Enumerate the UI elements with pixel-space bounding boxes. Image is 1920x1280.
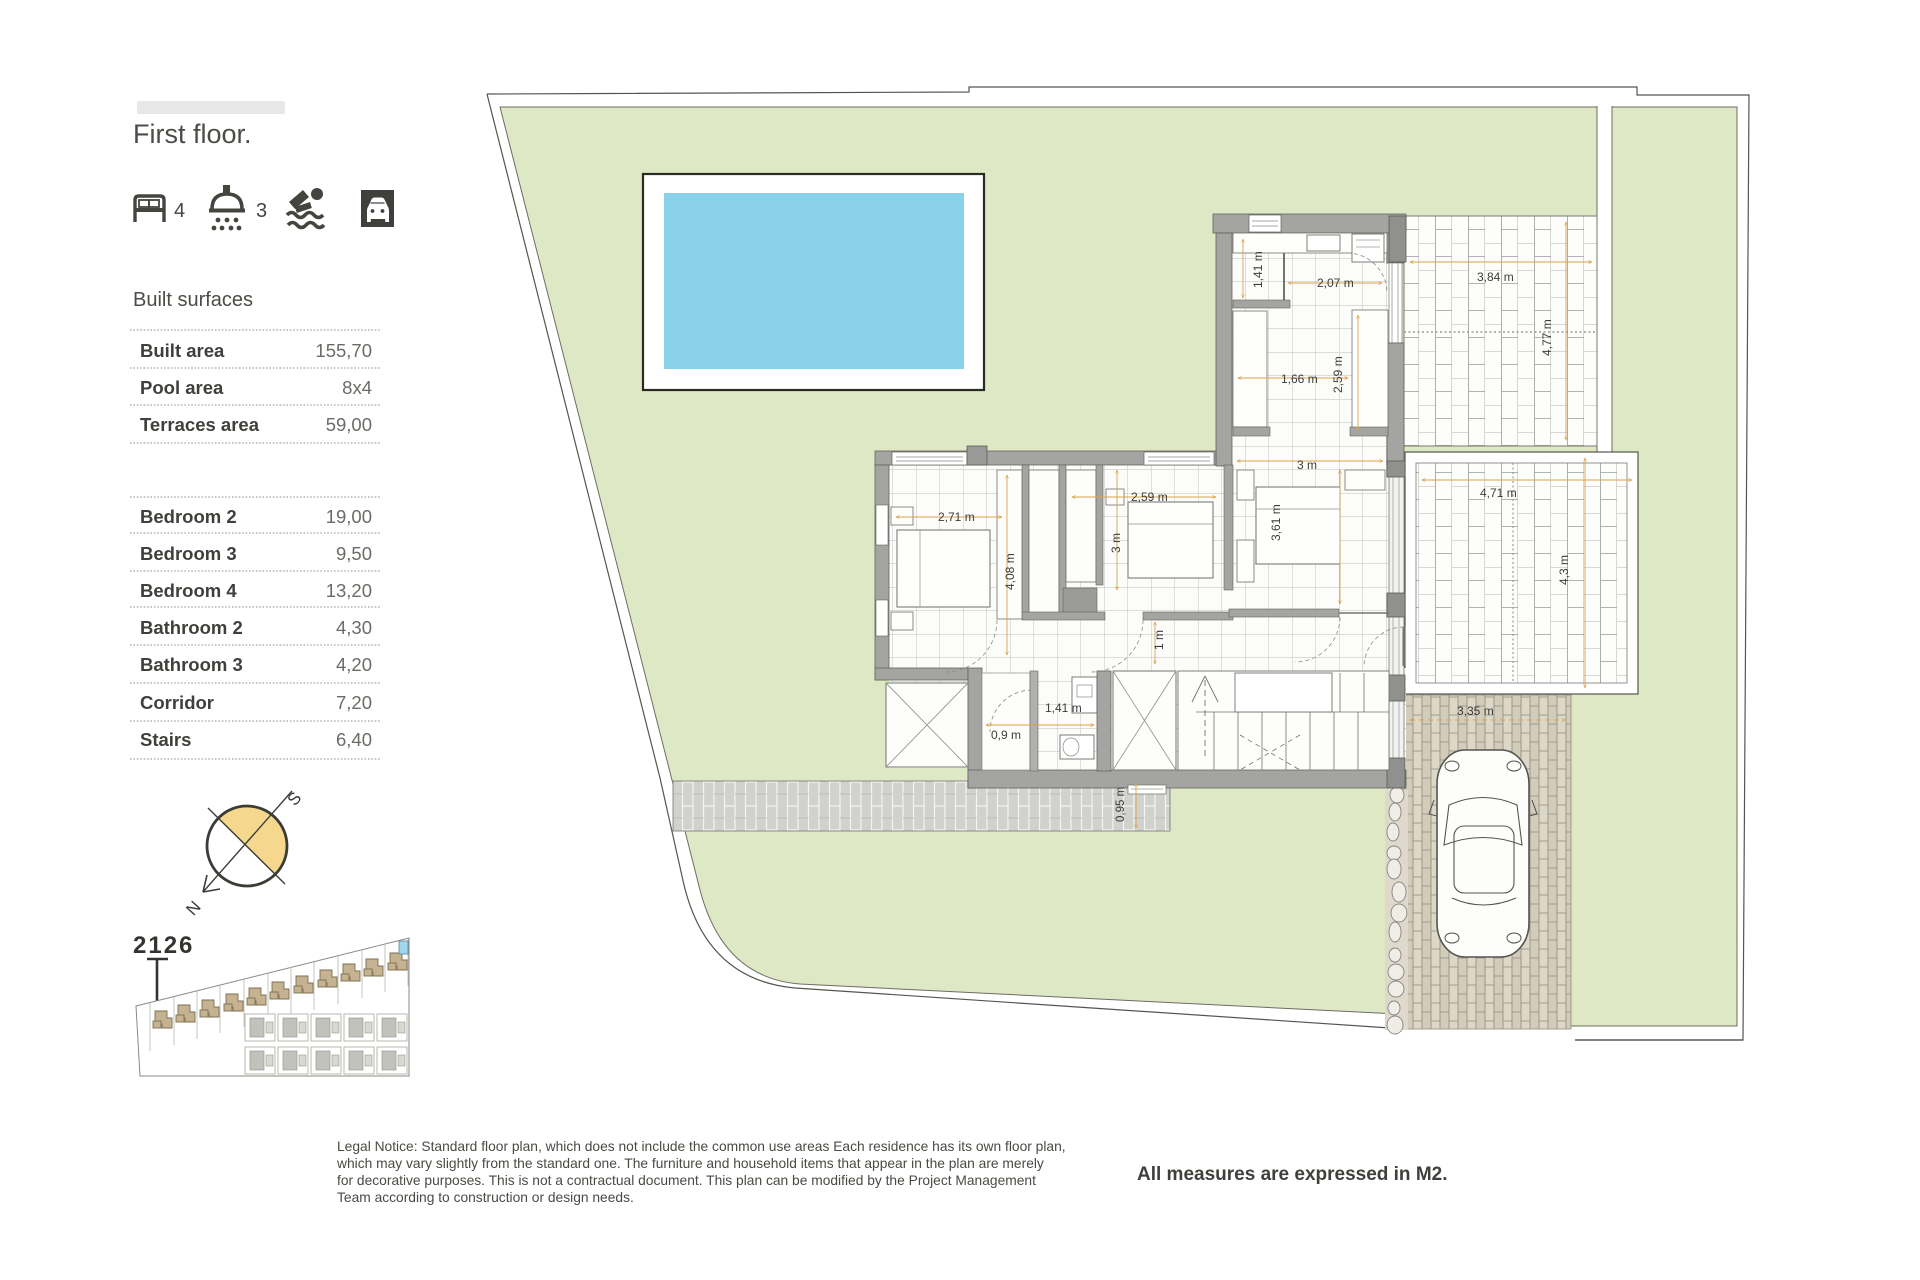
svg-text:4,3 m: 4,3 m	[1557, 555, 1571, 585]
svg-text:59,00: 59,00	[326, 414, 372, 435]
svg-text:6,40: 6,40	[336, 729, 372, 750]
svg-text:4,08 m: 4,08 m	[1003, 553, 1017, 590]
svg-text:7,20: 7,20	[336, 692, 372, 713]
svg-text:4: 4	[174, 200, 185, 222]
svg-text:2,59 m: 2,59 m	[1131, 490, 1168, 504]
svg-text:2126: 2126	[133, 932, 194, 959]
svg-text:Terraces area: Terraces area	[140, 414, 260, 435]
svg-text:Team according to construction: Team according to construction or design…	[337, 1190, 634, 1205]
svg-text:2,59 m: 2,59 m	[1331, 356, 1345, 393]
svg-text:3: 3	[256, 200, 267, 222]
svg-text:4,20: 4,20	[336, 654, 372, 675]
svg-text:4,71 m: 4,71 m	[1480, 486, 1517, 500]
svg-text:Corridor: Corridor	[140, 692, 214, 713]
svg-text:2,07 m: 2,07 m	[1317, 276, 1354, 290]
svg-text:Bedroom 3: Bedroom 3	[140, 543, 237, 564]
svg-text:All measures are expressed in: All measures are expressed in M2.	[1137, 1164, 1448, 1185]
svg-text:Legal Notice: Standard floor p: Legal Notice: Standard floor plan, which…	[337, 1139, 1066, 1154]
svg-text:13,20: 13,20	[326, 580, 372, 601]
svg-text:Stairs: Stairs	[140, 729, 191, 750]
svg-text:Bedroom 4: Bedroom 4	[140, 580, 237, 601]
svg-text:which may vary slightly from t: which may vary slightly from the standar…	[336, 1156, 1044, 1171]
svg-text:4,77 m: 4,77 m	[1540, 319, 1554, 356]
svg-text:3 m: 3 m	[1297, 458, 1317, 472]
svg-text:3,35 m: 3,35 m	[1457, 704, 1494, 718]
svg-text:3 m: 3 m	[1109, 533, 1123, 553]
svg-text:2,71 m: 2,71 m	[938, 510, 975, 524]
svg-text:Pool area: Pool area	[140, 377, 224, 398]
svg-text:8x4: 8x4	[342, 377, 372, 398]
svg-text:9,50: 9,50	[336, 543, 372, 564]
svg-text:1,41 m: 1,41 m	[1045, 701, 1082, 715]
svg-text:Bathroom 2: Bathroom 2	[140, 617, 243, 638]
svg-text:4,30: 4,30	[336, 617, 372, 638]
svg-text:First floor.: First floor.	[133, 119, 252, 149]
svg-text:Bedroom 2: Bedroom 2	[140, 506, 237, 527]
svg-text:1,41 m: 1,41 m	[1251, 251, 1265, 288]
svg-text:19,00: 19,00	[326, 506, 372, 527]
svg-text:Built surfaces: Built surfaces	[133, 289, 253, 311]
svg-text:3,84 m: 3,84 m	[1477, 270, 1514, 284]
svg-text:1 m: 1 m	[1152, 630, 1166, 650]
svg-text:Bathroom 3: Bathroom 3	[140, 654, 243, 675]
svg-text:0,95 m: 0,95 m	[1115, 787, 1127, 822]
svg-text:for decorative purposes. This: for decorative purposes. This is not a c…	[337, 1173, 1036, 1188]
svg-text:0,9 m: 0,9 m	[991, 728, 1021, 742]
svg-text:1,66 m: 1,66 m	[1281, 372, 1318, 386]
svg-text:155,70: 155,70	[315, 340, 372, 361]
svg-text:3,61 m: 3,61 m	[1269, 504, 1283, 541]
svg-text:Built area: Built area	[140, 340, 225, 361]
